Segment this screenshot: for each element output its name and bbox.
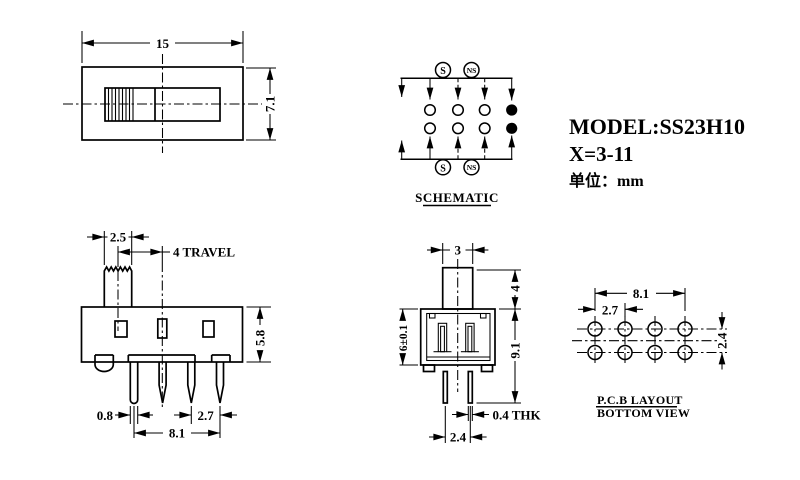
front-windows bbox=[115, 319, 214, 338]
side-pin-right bbox=[468, 372, 472, 404]
dim-knob-depth-label: 3 bbox=[454, 243, 461, 258]
terminal-s-bottom: S bbox=[440, 163, 446, 174]
schematic-arrows bbox=[402, 78, 512, 159]
engineering-drawing: 15 7.1 bbox=[0, 0, 800, 480]
terminal-ns-bottom: NS bbox=[467, 163, 477, 172]
pin-4 bbox=[217, 362, 224, 403]
model-number: MODEL:SS23H10 bbox=[569, 114, 745, 139]
dim-knob-width-label: 2.5 bbox=[110, 230, 127, 245]
dim-hole-pitch-label: 2.7 bbox=[602, 303, 619, 318]
dim-knob-height: 4 bbox=[477, 270, 523, 309]
dim-side-pin-gap: 2.4 bbox=[429, 406, 487, 445]
schematic-caption: SCHEMATIC bbox=[415, 190, 499, 205]
dim-knob-height-label: 4 bbox=[508, 285, 523, 292]
dim-hole-pitch: 2.7 bbox=[578, 303, 643, 318]
dim-body-depth-label: 6±0.1 bbox=[398, 325, 410, 352]
dim-body-depth: 6±0.1 bbox=[398, 309, 418, 365]
dim-row-gap: 2.4 bbox=[715, 312, 730, 370]
pin-1 bbox=[130, 362, 137, 403]
filled-contact bbox=[506, 123, 517, 134]
front-body-outline bbox=[82, 307, 243, 362]
drawing-canvas: 15 7.1 bbox=[0, 0, 800, 480]
contact-circles bbox=[425, 104, 518, 134]
front-view: 2.5 4 TRAVEL 5.8 0.8 2.7 bbox=[82, 230, 272, 441]
mount-bump bbox=[95, 362, 113, 371]
contact-prong-left bbox=[438, 323, 446, 351]
x-range: X=3-11 bbox=[569, 142, 633, 166]
terminal-s-top: S bbox=[440, 66, 446, 77]
side-foot-left bbox=[424, 365, 435, 372]
dim-travel: 4 TRAVEL bbox=[118, 245, 235, 260]
terminal-ns-top: NS bbox=[467, 66, 477, 75]
side-foot-right bbox=[482, 365, 493, 372]
side-inner-section bbox=[427, 314, 490, 361]
dim-pin-width: 0.8 bbox=[97, 406, 153, 424]
dim-pin-width-label: 0.8 bbox=[97, 408, 114, 423]
dim-travel-label: 4 TRAVEL bbox=[173, 245, 235, 260]
dim-pin-pitch-label: 2.7 bbox=[197, 408, 214, 423]
pin-3 bbox=[188, 362, 195, 403]
title-block: MODEL:SS23H10 X=3-11 单位：mm bbox=[569, 114, 745, 190]
dim-overall-height: 9.1 bbox=[477, 309, 523, 403]
front-pins bbox=[130, 362, 223, 403]
contact-prong-right bbox=[466, 323, 474, 351]
pcb-view: 8.1 2.7 2.4 P.C.B LAYOUT BOTTOM VIEW bbox=[572, 286, 730, 420]
dim-top-height-label: 7.1 bbox=[263, 96, 278, 112]
dim-pin-thickness: 0.4 THK bbox=[452, 406, 542, 423]
dim-top-width-label: 15 bbox=[156, 36, 170, 51]
top-view: 15 7.1 bbox=[63, 31, 278, 153]
filled-contact bbox=[506, 104, 517, 115]
terminal-badges: S NS S NS bbox=[436, 63, 480, 175]
dim-row-gap-label: 2.4 bbox=[715, 332, 730, 349]
unit-note: 单位：mm bbox=[569, 171, 644, 190]
dim-overall-height-label: 9.1 bbox=[508, 342, 523, 358]
pcb-caption-line1: P.C.B LAYOUT bbox=[597, 393, 683, 407]
dim-front-body-height-label: 5.8 bbox=[253, 329, 268, 346]
dim-front-body-height: 5.8 bbox=[247, 307, 272, 362]
schematic-view: S NS S NS SCHEMATIC bbox=[401, 63, 518, 206]
dim-pin-thickness-label: 0.4 THK bbox=[493, 408, 542, 423]
dim-pin-span-label: 8.1 bbox=[169, 426, 185, 441]
pcb-caption-line2: BOTTOM VIEW bbox=[597, 406, 690, 420]
side-view: 3 4 9.1 6±0.1 0.4 THK bbox=[398, 243, 542, 445]
dim-hole-span-label: 8.1 bbox=[633, 286, 649, 301]
dim-side-pin-gap-label: 2.4 bbox=[450, 430, 467, 445]
side-pin-left bbox=[443, 372, 447, 404]
